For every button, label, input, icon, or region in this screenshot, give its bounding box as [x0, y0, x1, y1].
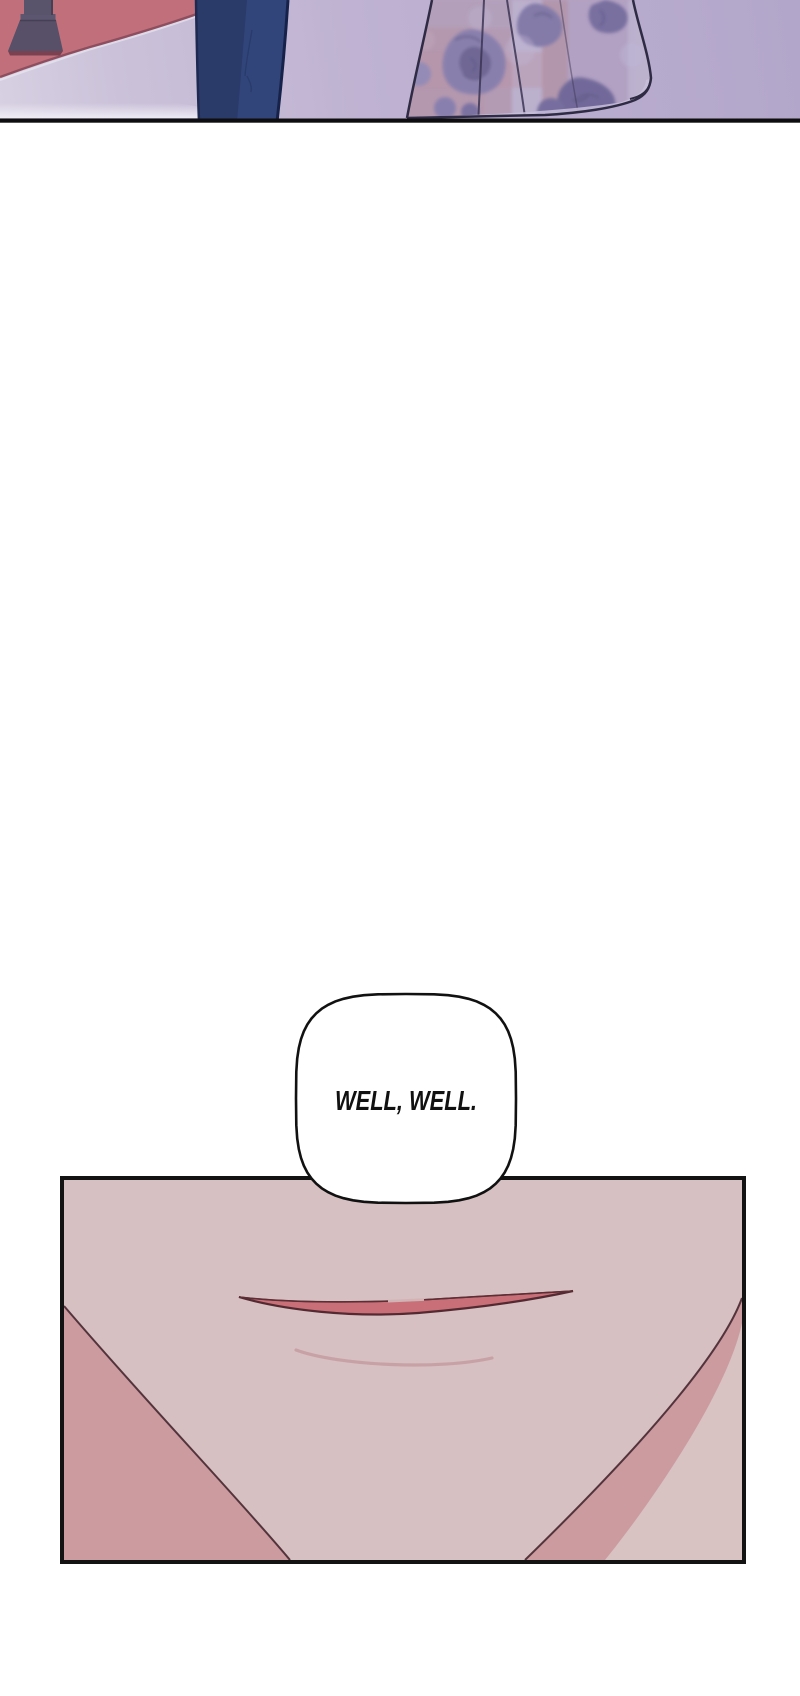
svg-text:WELL, WELL.: WELL, WELL.	[335, 1085, 477, 1116]
